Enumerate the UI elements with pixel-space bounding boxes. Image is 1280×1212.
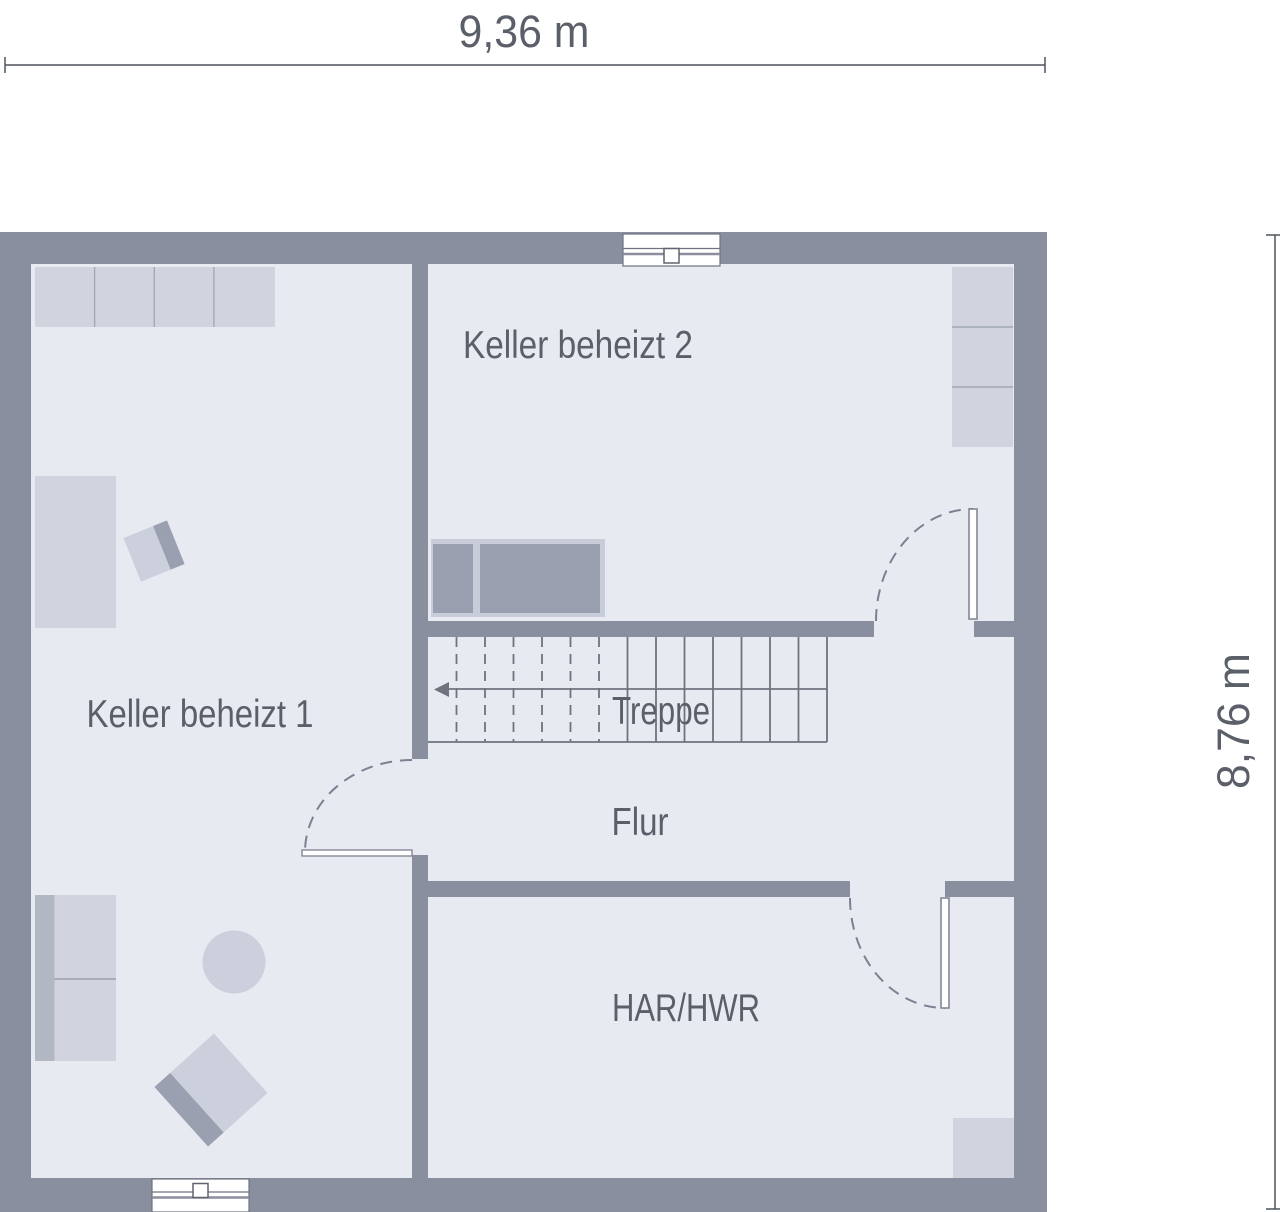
svg-text:9,36 m: 9,36 m [459,6,590,57]
svg-text:Keller beheizt 2: Keller beheizt 2 [463,324,693,367]
svg-text:Flur: Flur [612,801,669,844]
svg-text:Treppe: Treppe [612,690,710,733]
svg-text:HAR/HWR: HAR/HWR [612,987,760,1030]
svg-text:8,76 m: 8,76 m [1208,653,1259,789]
svg-text:Keller beheizt 1: Keller beheizt 1 [87,693,314,736]
